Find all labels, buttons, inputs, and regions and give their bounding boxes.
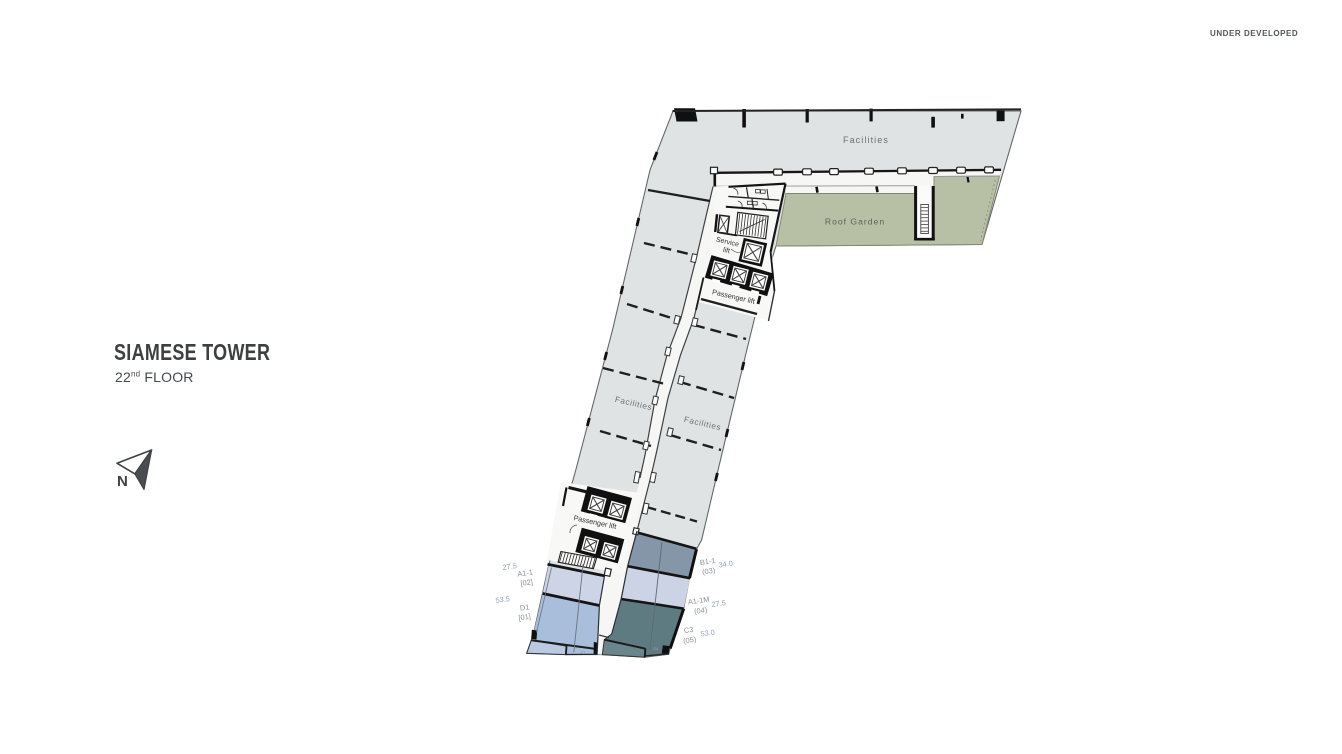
svg-text:Roof Garden: Roof Garden bbox=[825, 217, 885, 227]
svg-text:(04): (04) bbox=[694, 605, 708, 616]
svg-text:Facilities: Facilities bbox=[843, 135, 889, 145]
svg-text:[02]: [02] bbox=[520, 577, 533, 588]
svg-text:C3: C3 bbox=[683, 625, 694, 635]
svg-text:[01]: [01] bbox=[518, 612, 531, 623]
svg-text:(03): (03) bbox=[702, 566, 716, 577]
svg-text:(05): (05) bbox=[683, 635, 697, 646]
